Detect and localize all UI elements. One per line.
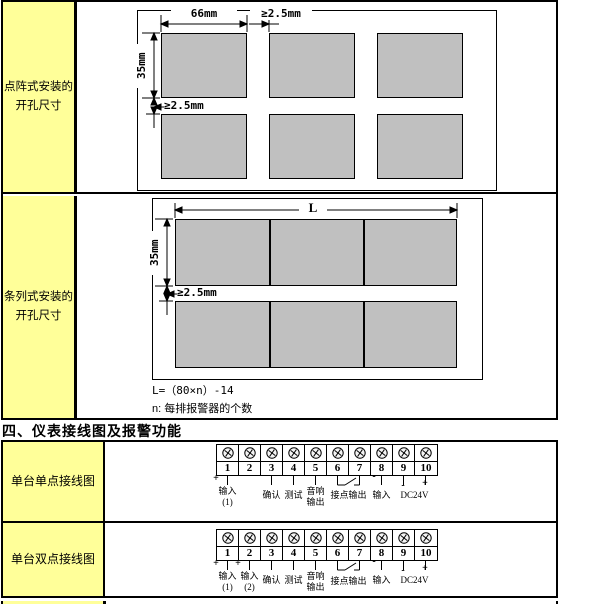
input-return-label: 输入 <box>368 490 395 501</box>
matrix-mount-label-line1: 点阵式安装的 <box>4 78 73 97</box>
terminal-number-row: 1 2 3 4 5 6 7 8 9 10 <box>217 462 437 475</box>
screw-terminal-icon <box>371 445 393 462</box>
strip-cutout-diagram: L 35mm ≥2.5mm <box>152 198 483 380</box>
terminal-number: 3 <box>261 462 283 475</box>
relay-output-label: 接点输出 <box>326 576 371 587</box>
terminal-number: 7 <box>349 462 371 475</box>
screw-terminal-icon <box>261 530 283 547</box>
dim-vgap-label: ≥2.5mm <box>164 99 204 112</box>
dim-length-label: L <box>299 200 327 216</box>
terminal-number: 4 <box>283 462 305 475</box>
cutout-strip <box>175 301 457 368</box>
datasheet-page: 点阵式安装的 开孔尺寸 <box>0 0 600 604</box>
dim-height-label: 35mm <box>148 231 162 275</box>
terminal-number: 9 <box>393 462 415 475</box>
screw-terminal-icon <box>305 530 327 547</box>
screw-terminal-icon <box>239 530 261 547</box>
terminal-number: 3 <box>261 547 283 560</box>
strip-mount-diagram-area: L 35mm ≥2.5mm L=（80×n）-14 n: 每排报警器的个数 <box>80 196 556 418</box>
screw-terminal-icon <box>217 530 239 547</box>
mounting-dimensions-table: 点阵式安装的 开孔尺寸 <box>1 0 558 420</box>
dc24v-label: DC24V <box>392 490 437 501</box>
strip-divider <box>269 220 271 285</box>
relay-output-label: 接点输出 <box>326 490 371 501</box>
input-return-label: 输入 <box>368 575 395 586</box>
terminal-number: 10 <box>415 547 437 560</box>
wiring-double-label-cell: 单台双点接线图 <box>3 523 105 596</box>
strip-mount-row: 条列式安装的 开孔尺寸 <box>3 196 556 418</box>
strip-divider <box>363 220 365 285</box>
matrix-mount-label-cell: 点阵式安装的 开孔尺寸 <box>3 2 77 192</box>
screw-terminal-icon <box>393 445 415 462</box>
wiring-single-diagram-area: 1 2 3 4 5 6 7 8 9 10 <box>107 442 556 521</box>
dc-plus-sign: + <box>419 564 431 574</box>
length-formula-note: n: 每排报警器的个数 <box>152 400 252 416</box>
audio-out-label-line2: 输出 <box>302 497 329 508</box>
matrix-mount-row: 点阵式安装的 开孔尺寸 <box>3 2 556 194</box>
terminal-strip: 1 2 3 4 5 6 7 8 9 10 <box>216 444 438 476</box>
wiring-double-row: 单台双点接线图 <box>3 523 556 596</box>
wiring-single-row: 单台单点接线图 <box>3 442 556 523</box>
terminal-number-row: 1 2 3 4 5 6 7 8 9 10 <box>217 547 437 560</box>
screw-terminal-icon <box>239 445 261 462</box>
terminal-number: 10 <box>415 462 437 475</box>
input-minus-sign: - <box>369 472 379 482</box>
screw-terminal-icon <box>415 530 437 547</box>
terminal-number: 5 <box>305 547 327 560</box>
terminal-number: 7 <box>349 547 371 560</box>
dc24v-label: DC24V <box>392 575 437 586</box>
strip-mount-label-line2: 开孔尺寸 <box>16 307 62 326</box>
screw-terminal-icon <box>349 445 371 462</box>
wiring-double-diagram-area: 1 2 3 4 5 6 7 8 9 10 <box>107 523 556 596</box>
terminal-number: 6 <box>327 547 349 560</box>
screw-terminal-icon <box>217 445 239 462</box>
screw-terminal-icon <box>261 445 283 462</box>
screw-terminal-icon <box>283 530 305 547</box>
terminal-number: 5 <box>305 462 327 475</box>
dim-height-label: 35mm <box>135 44 149 88</box>
matrix-mount-diagram-area: 66mm ≥2.5mm 35mm ≥2.5mm <box>80 2 556 192</box>
input2-plus-sign: + <box>232 559 244 569</box>
input-minus-sign: - <box>369 557 379 567</box>
screw-row <box>217 445 437 462</box>
screw-terminal-icon <box>327 445 349 462</box>
strip-mount-label-cell: 条列式安装的 开孔尺寸 <box>3 196 77 418</box>
terminal-number: 2 <box>239 462 261 475</box>
dim-width-label: 66mm <box>171 7 237 20</box>
cutout-panel <box>377 114 463 179</box>
cutout-panel <box>161 114 247 179</box>
dim-vgap-label: ≥2.5mm <box>177 286 217 299</box>
screw-terminal-icon <box>371 530 393 547</box>
wiring-double-label: 单台双点接线图 <box>11 550 95 569</box>
screw-terminal-icon <box>327 530 349 547</box>
input1-plus-sign: + <box>210 474 222 484</box>
input1-plus-sign: + <box>210 559 222 569</box>
terminal-number: 6 <box>327 462 349 475</box>
cutout-panel <box>161 33 247 98</box>
matrix-mount-label-line2: 开孔尺寸 <box>16 97 62 116</box>
strip-divider <box>269 302 271 367</box>
screw-terminal-icon <box>415 445 437 462</box>
screw-terminal-icon <box>305 445 327 462</box>
screw-terminal-icon <box>393 530 415 547</box>
wiring-table: 单台单点接线图 <box>1 440 558 598</box>
wiring-single-label-cell: 单台单点接线图 <box>3 442 105 521</box>
screw-terminal-icon <box>283 445 305 462</box>
dc-plus-sign: + <box>419 479 431 489</box>
wiring-single-label: 单台单点接线图 <box>11 472 95 491</box>
terminal-number: 9 <box>393 547 415 560</box>
terminal-number: 4 <box>283 547 305 560</box>
audio-out-label-line1: 音响 <box>302 486 329 497</box>
cutout-panel <box>377 33 463 98</box>
audio-out-label-line1: 音响 <box>302 571 329 582</box>
screw-terminal-icon <box>349 530 371 547</box>
strip-divider <box>363 302 365 367</box>
cutout-panel <box>269 114 355 179</box>
dim-hgap-label: ≥2.5mm <box>250 7 312 20</box>
strip-mount-label-line1: 条列式安装的 <box>4 288 73 307</box>
input1-label: 输入 <box>214 486 241 497</box>
screw-row <box>217 530 437 547</box>
cutout-strip <box>175 219 457 286</box>
terminal-strip: 1 2 3 4 5 6 7 8 9 10 <box>216 529 438 561</box>
length-formula: L=（80×n）-14 <box>152 382 234 398</box>
audio-out-label-line2: 输出 <box>302 582 329 593</box>
input1-sub-label: (1) <box>214 497 241 508</box>
cutout-panel <box>269 33 355 98</box>
matrix-cutout-diagram: 66mm ≥2.5mm 35mm ≥2.5mm <box>137 10 497 191</box>
